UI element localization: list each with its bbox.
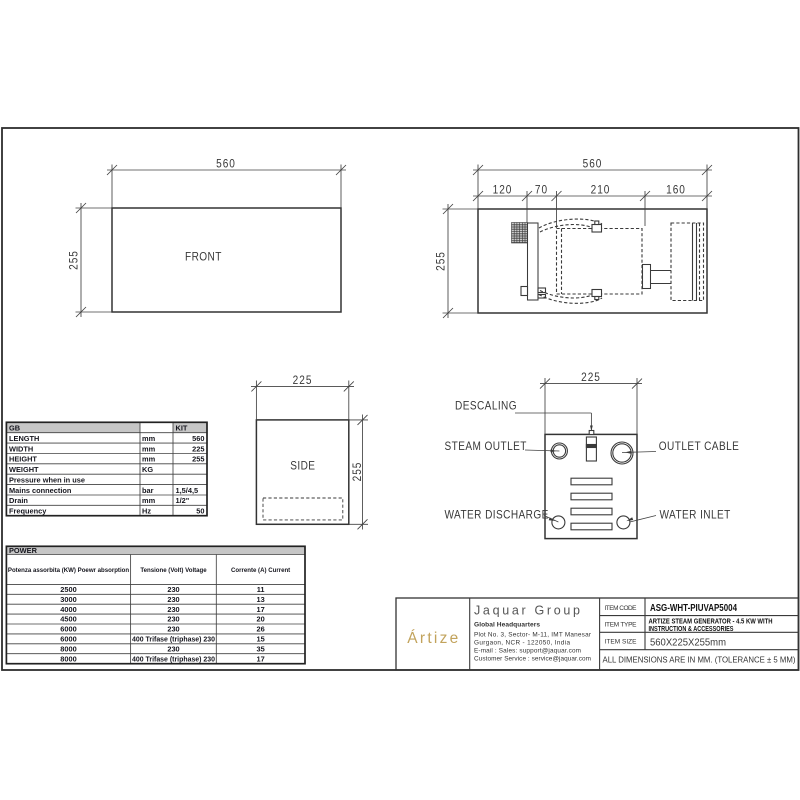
svg-text:17: 17 xyxy=(256,654,264,663)
svg-text:Mains connection: Mains connection xyxy=(9,486,72,495)
svg-text:Frequency: Frequency xyxy=(9,507,47,516)
svg-text:560X225X255mm: 560X225X255mm xyxy=(650,637,726,649)
svg-text:mm: mm xyxy=(142,444,156,453)
svg-text:560: 560 xyxy=(216,158,236,171)
svg-text:KIT: KIT xyxy=(176,424,188,433)
svg-text:255: 255 xyxy=(435,251,448,271)
svg-text:mm: mm xyxy=(142,455,156,464)
svg-text:35: 35 xyxy=(256,644,264,653)
svg-text:Plot No. 3, Sector- M-11, IMT: Plot No. 3, Sector- M-11, IMT Manesar xyxy=(474,631,592,638)
svg-text:20: 20 xyxy=(256,615,264,624)
svg-text:mm: mm xyxy=(142,496,156,505)
svg-text:230: 230 xyxy=(167,625,179,634)
svg-text:8000: 8000 xyxy=(60,644,76,653)
svg-text:15: 15 xyxy=(256,635,264,644)
svg-text:ARTIZE STEAM GENERATOR - 4.5: ARTIZE STEAM GENERATOR - 4.5 KW WITH xyxy=(649,619,773,626)
svg-text:230: 230 xyxy=(167,605,179,614)
svg-text:Hz: Hz xyxy=(142,507,151,516)
svg-text:26: 26 xyxy=(256,625,264,634)
svg-text:ALL DIMENSIONS ARE IN MM. (TOL: ALL DIMENSIONS ARE IN MM. (TOLERANCE ± 5… xyxy=(603,656,796,665)
svg-text:400 Trifase (triphase) 230: 400 Trifase (triphase) 230 xyxy=(132,635,215,644)
svg-text:Customer Service : service@jaq: Customer Service : service@jaquar.com xyxy=(474,655,591,662)
svg-text:GB: GB xyxy=(9,424,20,433)
svg-text:3000: 3000 xyxy=(60,595,76,604)
svg-text:WEIGHT: WEIGHT xyxy=(9,465,39,474)
svg-text:E-mail : Sales: support@jaquar: E-mail : Sales: support@jaquar.com xyxy=(474,647,581,654)
svg-text:255: 255 xyxy=(68,250,81,270)
svg-text:SIDE: SIDE xyxy=(290,460,315,473)
svg-text:Tensione (Volt) Voltage: Tensione (Volt) Voltage xyxy=(140,567,207,574)
svg-text:1,5/4,5: 1,5/4,5 xyxy=(176,486,199,495)
svg-text:ASG-WHT-PIUVAP5004: ASG-WHT-PIUVAP5004 xyxy=(650,603,737,614)
svg-text:6000: 6000 xyxy=(60,635,76,644)
svg-text:560: 560 xyxy=(192,434,204,443)
svg-text:560: 560 xyxy=(583,158,603,171)
svg-text:230: 230 xyxy=(167,615,179,624)
svg-text:11: 11 xyxy=(257,585,265,594)
svg-text:ITEM CODE: ITEM CODE xyxy=(605,605,638,612)
svg-text:13: 13 xyxy=(256,595,264,604)
svg-text:WATER INLET: WATER INLET xyxy=(660,509,731,522)
svg-text:160: 160 xyxy=(666,184,686,197)
svg-text:DESCALING: DESCALING xyxy=(455,400,517,413)
svg-text:LENGTH: LENGTH xyxy=(9,434,39,443)
svg-text:6000: 6000 xyxy=(60,625,76,634)
svg-text:120: 120 xyxy=(493,184,513,197)
svg-text:bar: bar xyxy=(142,486,154,495)
svg-text:4500: 4500 xyxy=(60,615,76,624)
svg-text:OUTLET CABLE: OUTLET CABLE xyxy=(659,440,739,453)
svg-text:17: 17 xyxy=(256,605,264,614)
svg-text:4000: 4000 xyxy=(60,605,76,614)
svg-text:1/2": 1/2" xyxy=(176,496,190,505)
svg-text:Drain: Drain xyxy=(9,496,28,505)
svg-text:225: 225 xyxy=(192,444,204,453)
svg-text:POWER: POWER xyxy=(9,546,38,555)
svg-text:255: 255 xyxy=(192,455,204,464)
svg-text:230: 230 xyxy=(167,585,179,594)
svg-text:WIDTH: WIDTH xyxy=(9,444,33,453)
svg-text:Corrente (A) Current: Corrente (A) Current xyxy=(231,567,290,574)
svg-text:Potenza assorbita (KW) Poewr a: Potenza assorbita (KW) Poewr absorption xyxy=(8,567,129,574)
svg-text:225: 225 xyxy=(293,374,313,387)
svg-text:Gurgaon, NCR - 122050, India: Gurgaon, NCR - 122050, India xyxy=(474,639,570,646)
svg-text:210: 210 xyxy=(591,184,611,197)
svg-text:230: 230 xyxy=(167,644,179,653)
svg-text:Global Headquarters: Global Headquarters xyxy=(474,622,540,629)
svg-text:STEAM OUTLET: STEAM OUTLET xyxy=(445,440,527,453)
svg-text:2500: 2500 xyxy=(60,585,76,594)
svg-text:FRONT: FRONT xyxy=(185,251,222,264)
svg-text:8000: 8000 xyxy=(60,654,76,663)
svg-text:INSTRUCTION & ACCESSORIES: INSTRUCTION & ACCESSORIES xyxy=(649,626,734,633)
svg-text:WATER DISCHARGE: WATER DISCHARGE xyxy=(445,509,549,522)
svg-text:230: 230 xyxy=(167,595,179,604)
svg-text:Pressure when in use: Pressure when in use xyxy=(9,476,85,485)
svg-text:mm: mm xyxy=(142,434,156,443)
svg-text:255: 255 xyxy=(351,462,364,482)
svg-text:50: 50 xyxy=(196,507,204,516)
svg-text:ITEM SIZE: ITEM SIZE xyxy=(605,639,638,646)
svg-text:KG: KG xyxy=(142,465,153,474)
svg-text:HEIGHT: HEIGHT xyxy=(9,455,37,464)
svg-text:225: 225 xyxy=(581,371,601,384)
svg-text:400 Trifase (triphase) 230: 400 Trifase (triphase) 230 xyxy=(132,654,215,663)
svg-text:ITEM TYPE: ITEM TYPE xyxy=(605,621,638,628)
svg-text:70: 70 xyxy=(535,184,548,197)
